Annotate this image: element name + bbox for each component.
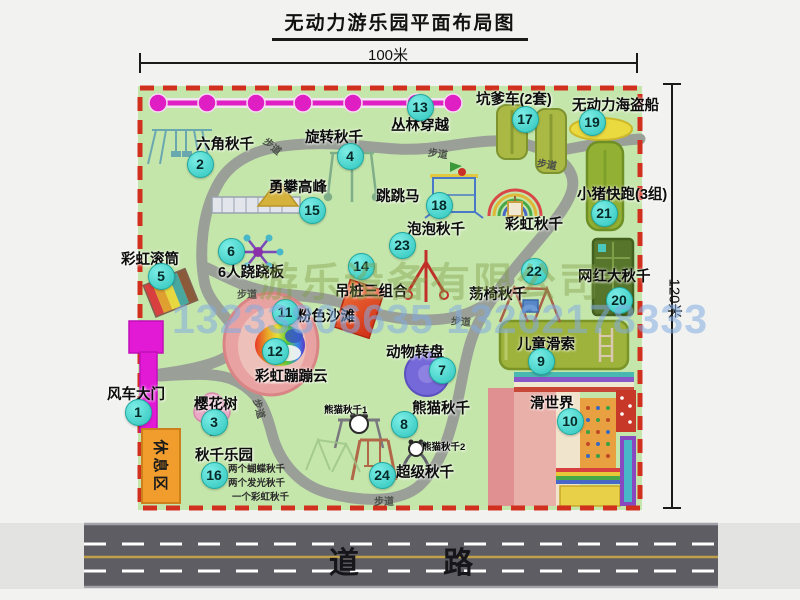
jungle-crossing-badge: 13 — [407, 94, 434, 121]
super-swing-label: 超级秋千 — [396, 461, 454, 482]
big-swing-label: 网红大秋千 — [578, 265, 651, 286]
rest-area-label: 休息区 — [142, 429, 180, 503]
width-dimension-label: 100米 — [368, 44, 408, 65]
chair-swing-label: 荡椅秋千 — [469, 283, 527, 304]
bubble-swing-badge: 23 — [389, 232, 416, 259]
page-title-text: 无动力游乐园平面布局图 — [272, 8, 527, 41]
pit-car-badge: 17 — [512, 106, 539, 133]
big-swing-badge: 20 — [606, 287, 633, 314]
slide-world-badge: 10 — [557, 408, 584, 435]
jumping-horse-label: 跳跳马 — [376, 185, 420, 206]
page-title: 无动力游乐园平面布局图 — [0, 8, 800, 41]
swing-park-note: 一个彩虹秋千 — [232, 489, 289, 503]
hex-swing-badge: 2 — [187, 151, 214, 178]
piggy-run-badge: 21 — [591, 200, 618, 227]
hanging-pile-badge: 14 — [348, 253, 375, 280]
rainbow-swing-label: 彩虹秋千 — [505, 213, 563, 234]
trail-label: 步道 — [374, 493, 394, 508]
kids-zipline-badge: 9 — [528, 348, 555, 375]
six-seesaw-badge: 6 — [218, 238, 245, 265]
rainbow-cloud-label: 彩虹蹦蹦云 — [255, 365, 328, 386]
trail-label: 步道 — [427, 144, 449, 162]
chair-swing-badge: 22 — [521, 258, 548, 285]
rainbow-cloud-badge: 12 — [262, 338, 289, 365]
windmill-gate-badge: 1 — [125, 399, 152, 426]
super-swing-badge: 24 — [369, 462, 396, 489]
climbing-peak-label: 勇攀高峰 — [269, 176, 327, 197]
pink-beach-label: 粉色沙滩 — [297, 305, 355, 326]
rotating-swing-badge: 4 — [337, 143, 364, 170]
climbing-peak-badge: 15 — [299, 197, 326, 224]
animal-turntable-badge: 7 — [429, 357, 456, 384]
bubble-swing-label: 泡泡秋千 — [407, 218, 465, 239]
trail-label: 步道 — [237, 286, 257, 301]
road-label: 道 路 — [84, 538, 718, 582]
panda-swing-1-label: 熊猫秋千1 — [324, 402, 367, 416]
height-dimension-label: 120米 — [665, 278, 686, 318]
pit-car-label: 坑爹车(2套) — [476, 88, 552, 109]
swing-park-note: 两个发光秋千 — [228, 475, 285, 489]
rainbow-roller-badge: 5 — [148, 263, 175, 290]
panda-swing-2-label: 熊猫秋千2 — [422, 439, 465, 453]
pink-beach-badge: 11 — [272, 299, 299, 326]
swing-park-badge: 16 — [201, 462, 228, 489]
cherry-tree-badge: 3 — [201, 409, 228, 436]
trail-label: 步道 — [536, 154, 558, 172]
jumping-horse-badge: 18 — [426, 192, 453, 219]
panda-swing-badge: 8 — [391, 411, 418, 438]
piggy-run-label: 小猪快跑(3组) — [577, 183, 667, 204]
pirate-ship-badge: 19 — [579, 109, 606, 136]
trail-label: 步道 — [450, 312, 471, 329]
hanging-pile-label: 吊桩三组合 — [335, 280, 408, 301]
swing-park-note: 两个蝴蝶秋千 — [228, 461, 285, 475]
panda-swing-label: 熊猫秋千 — [412, 397, 470, 418]
screenshot-root: 无动力游乐园平面布局图 100米 120米 — [0, 0, 800, 600]
